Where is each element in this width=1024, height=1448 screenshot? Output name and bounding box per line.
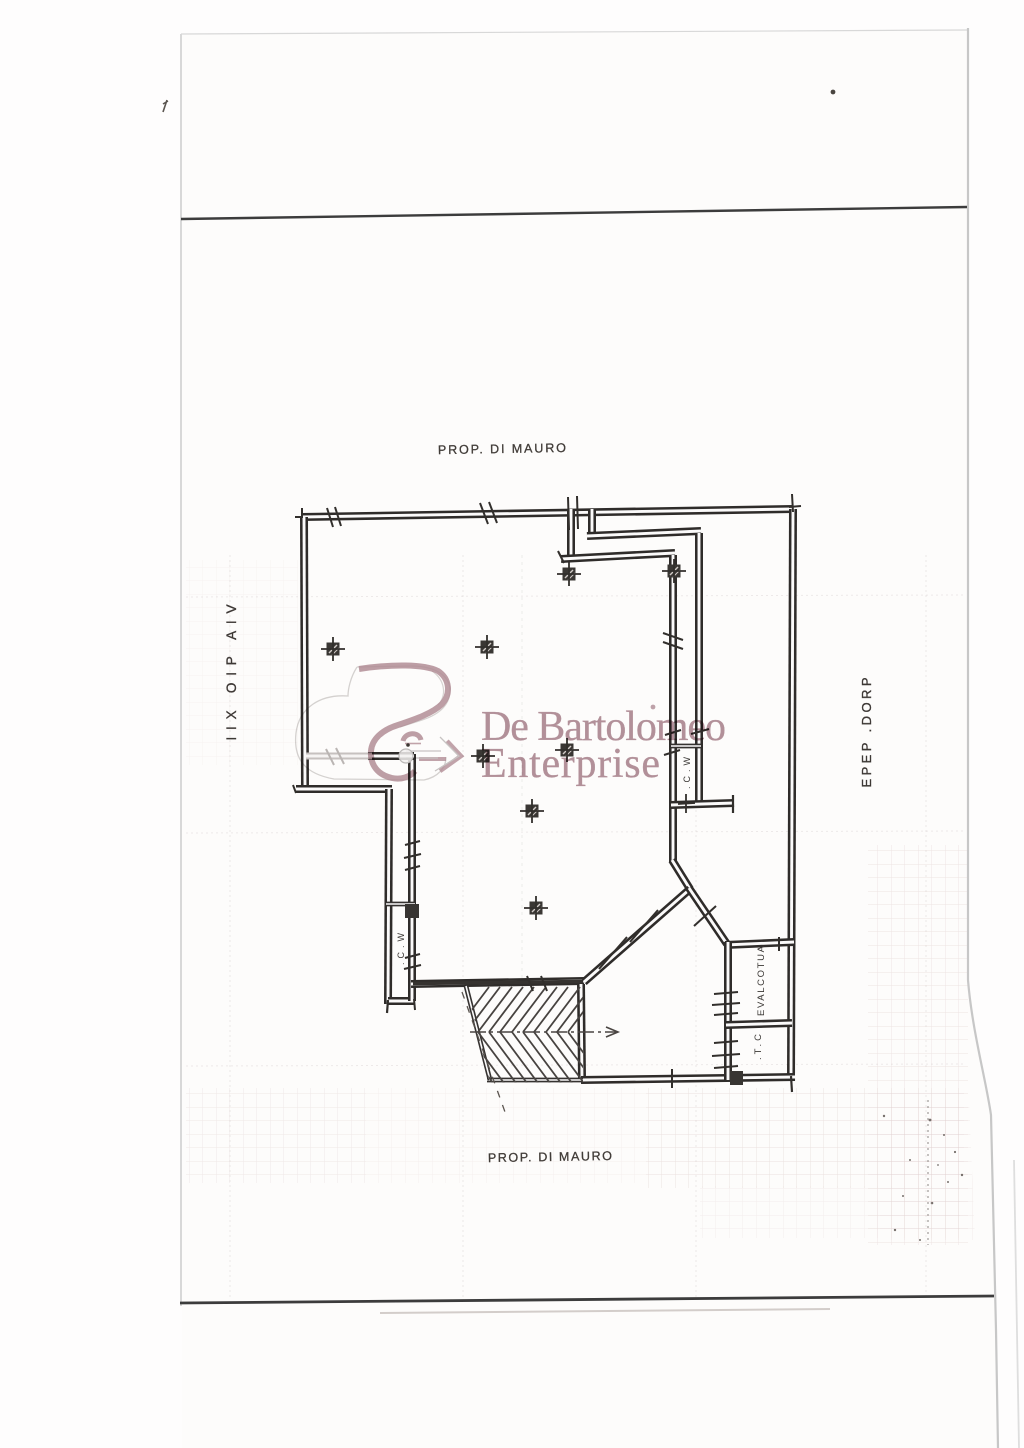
svg-text:PROP. DI MAURO: PROP. DI MAURO xyxy=(488,1149,614,1165)
svg-text:EPEP .DORP: EPEP .DORP xyxy=(859,677,874,788)
svg-text:IIX OIP AIV: IIX OIP AIV xyxy=(224,604,239,741)
svg-text:PROP. DI MAURO: PROP. DI MAURO xyxy=(438,441,568,457)
svg-text:EVALCOTUA: EVALCOTUA xyxy=(756,945,767,1016)
svg-text:Enterprise: Enterprise xyxy=(481,741,660,787)
